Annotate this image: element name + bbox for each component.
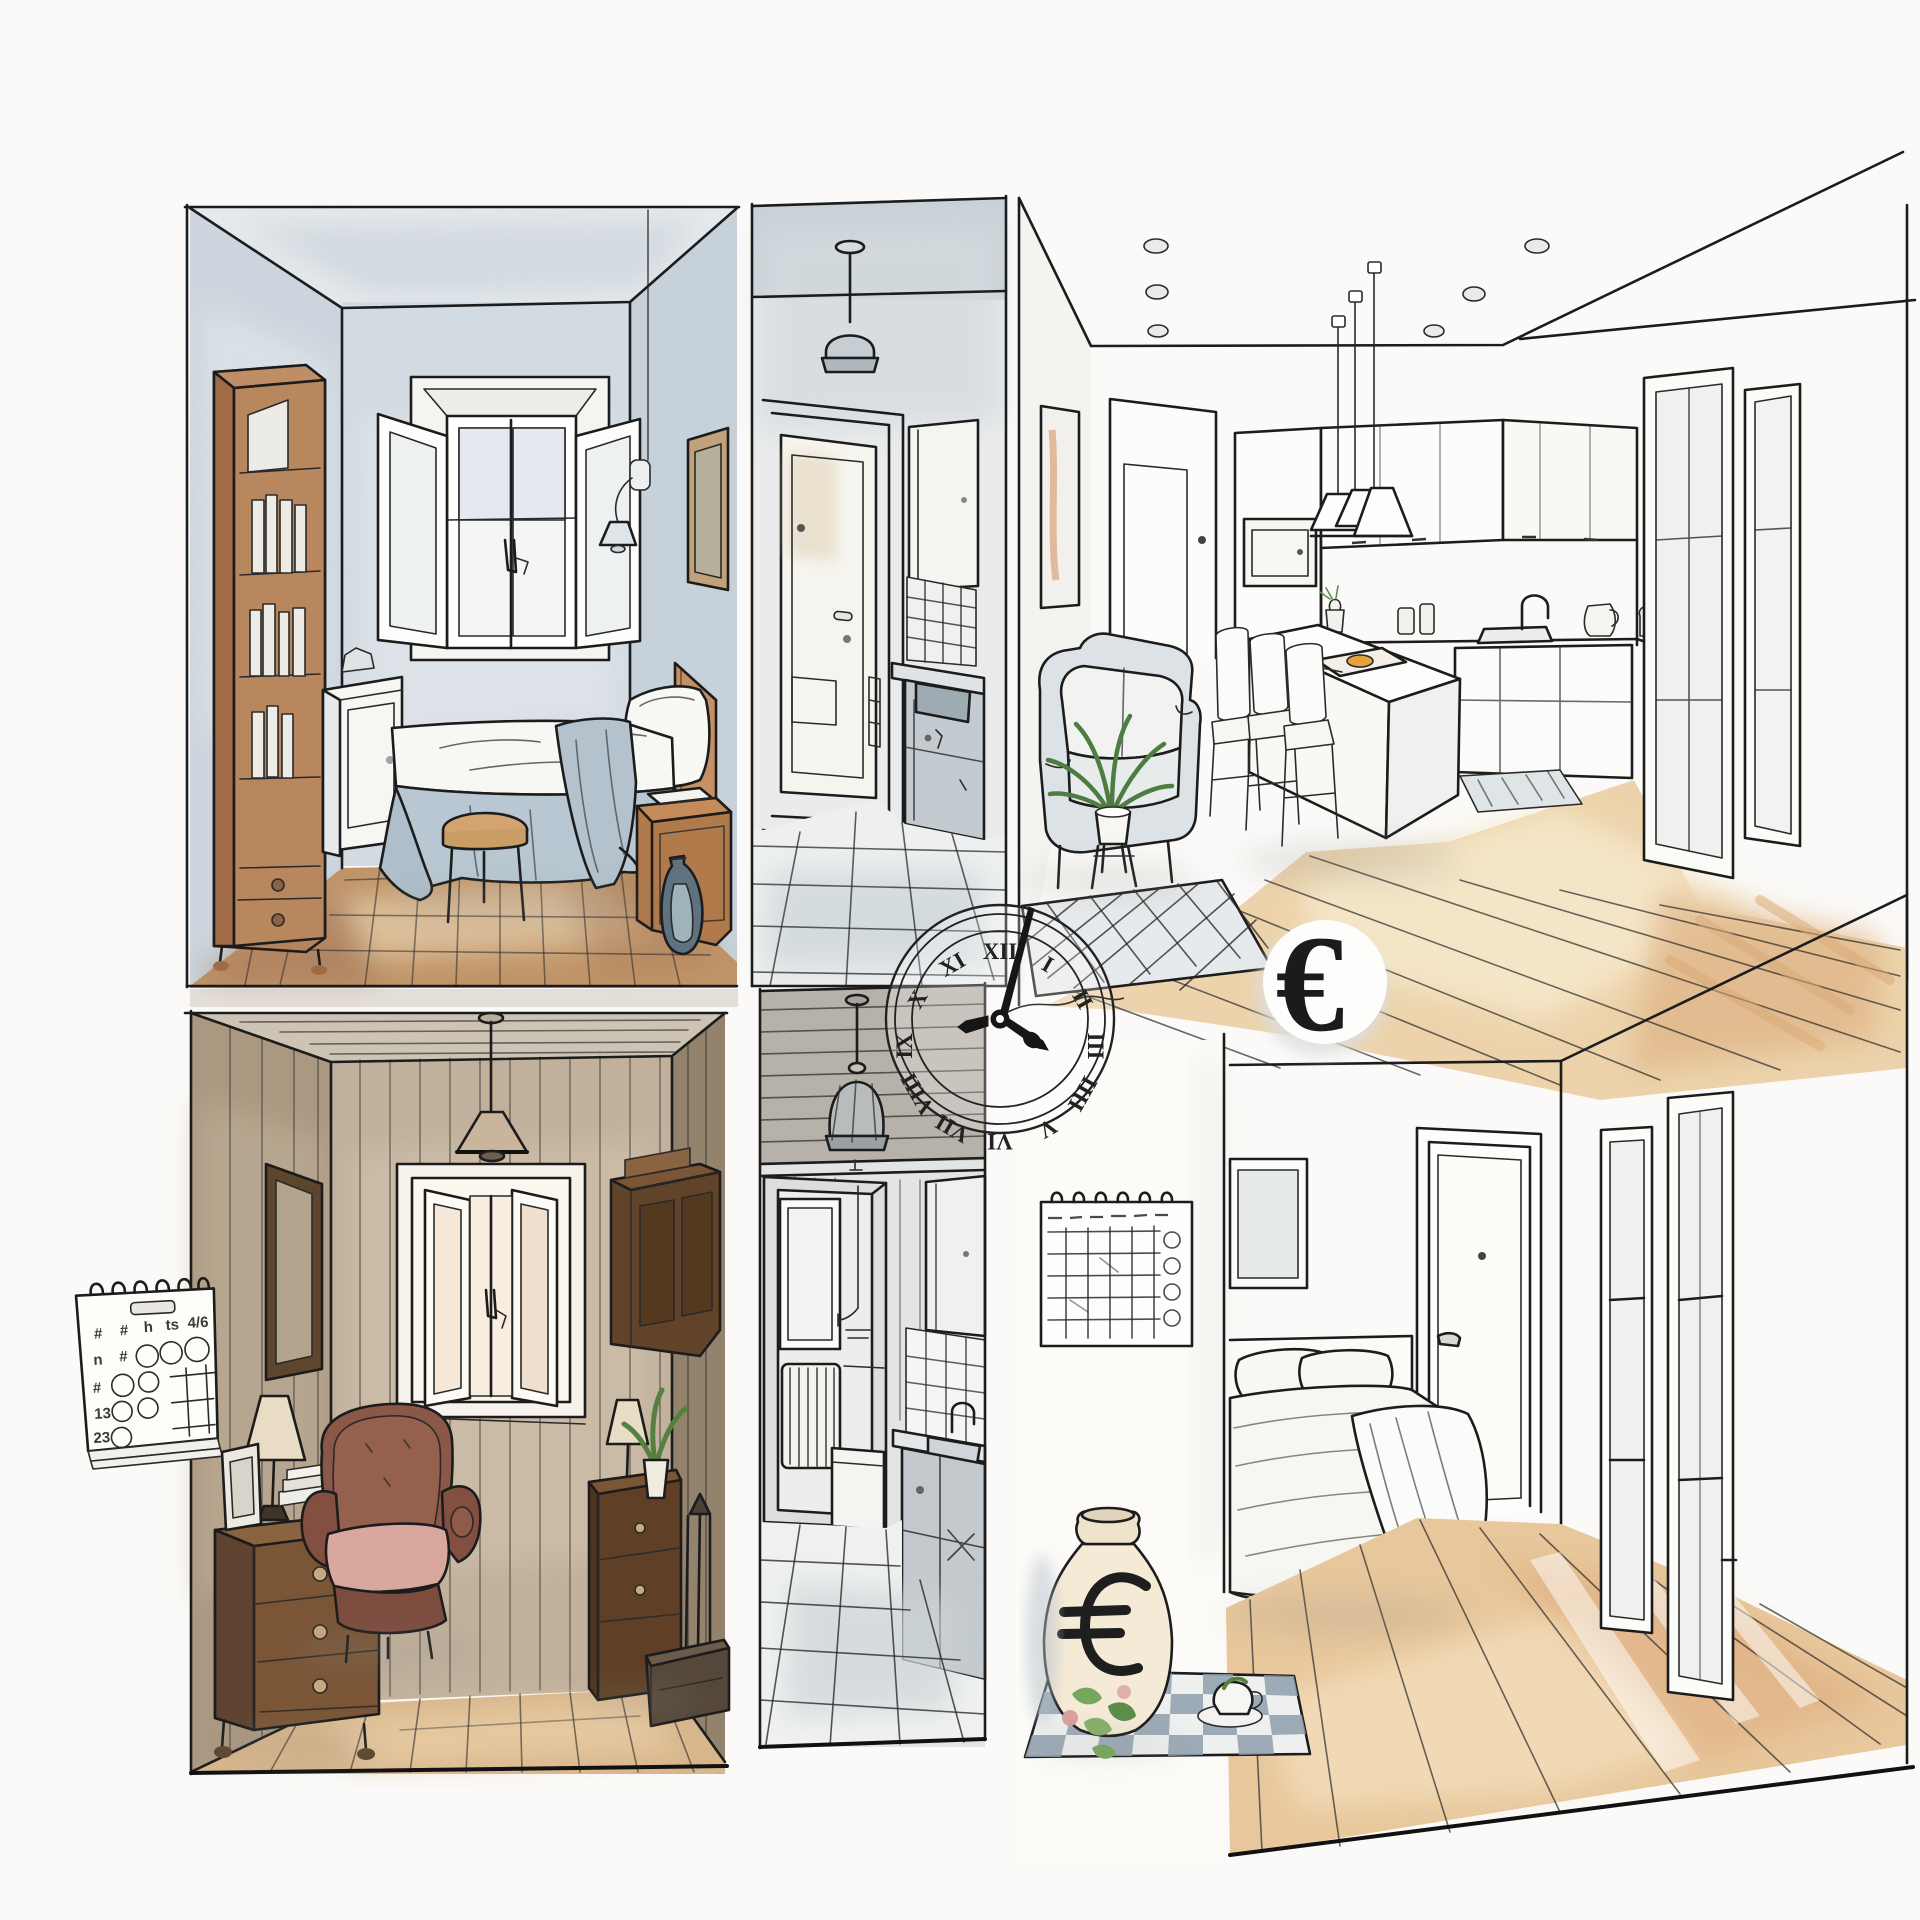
svg-text:VI: VI: [987, 1129, 1013, 1154]
svg-text:#: #: [119, 1348, 129, 1365]
svg-text:h: h: [143, 1319, 153, 1336]
svg-text:#: #: [119, 1322, 129, 1339]
svg-text:#: #: [94, 1325, 104, 1342]
svg-text:ts: ts: [165, 1316, 179, 1334]
svg-text:23: 23: [93, 1429, 111, 1447]
svg-text:XII: XII: [983, 939, 1018, 964]
svg-text:4/6: 4/6: [187, 1314, 209, 1332]
svg-text:13: 13: [94, 1405, 112, 1423]
svg-text:n: n: [93, 1351, 103, 1368]
svg-text:IX: IX: [892, 1033, 917, 1059]
svg-text:€: €: [1276, 907, 1345, 1060]
svg-text:III: III: [1083, 1033, 1108, 1060]
svg-text:#: #: [92, 1379, 102, 1396]
